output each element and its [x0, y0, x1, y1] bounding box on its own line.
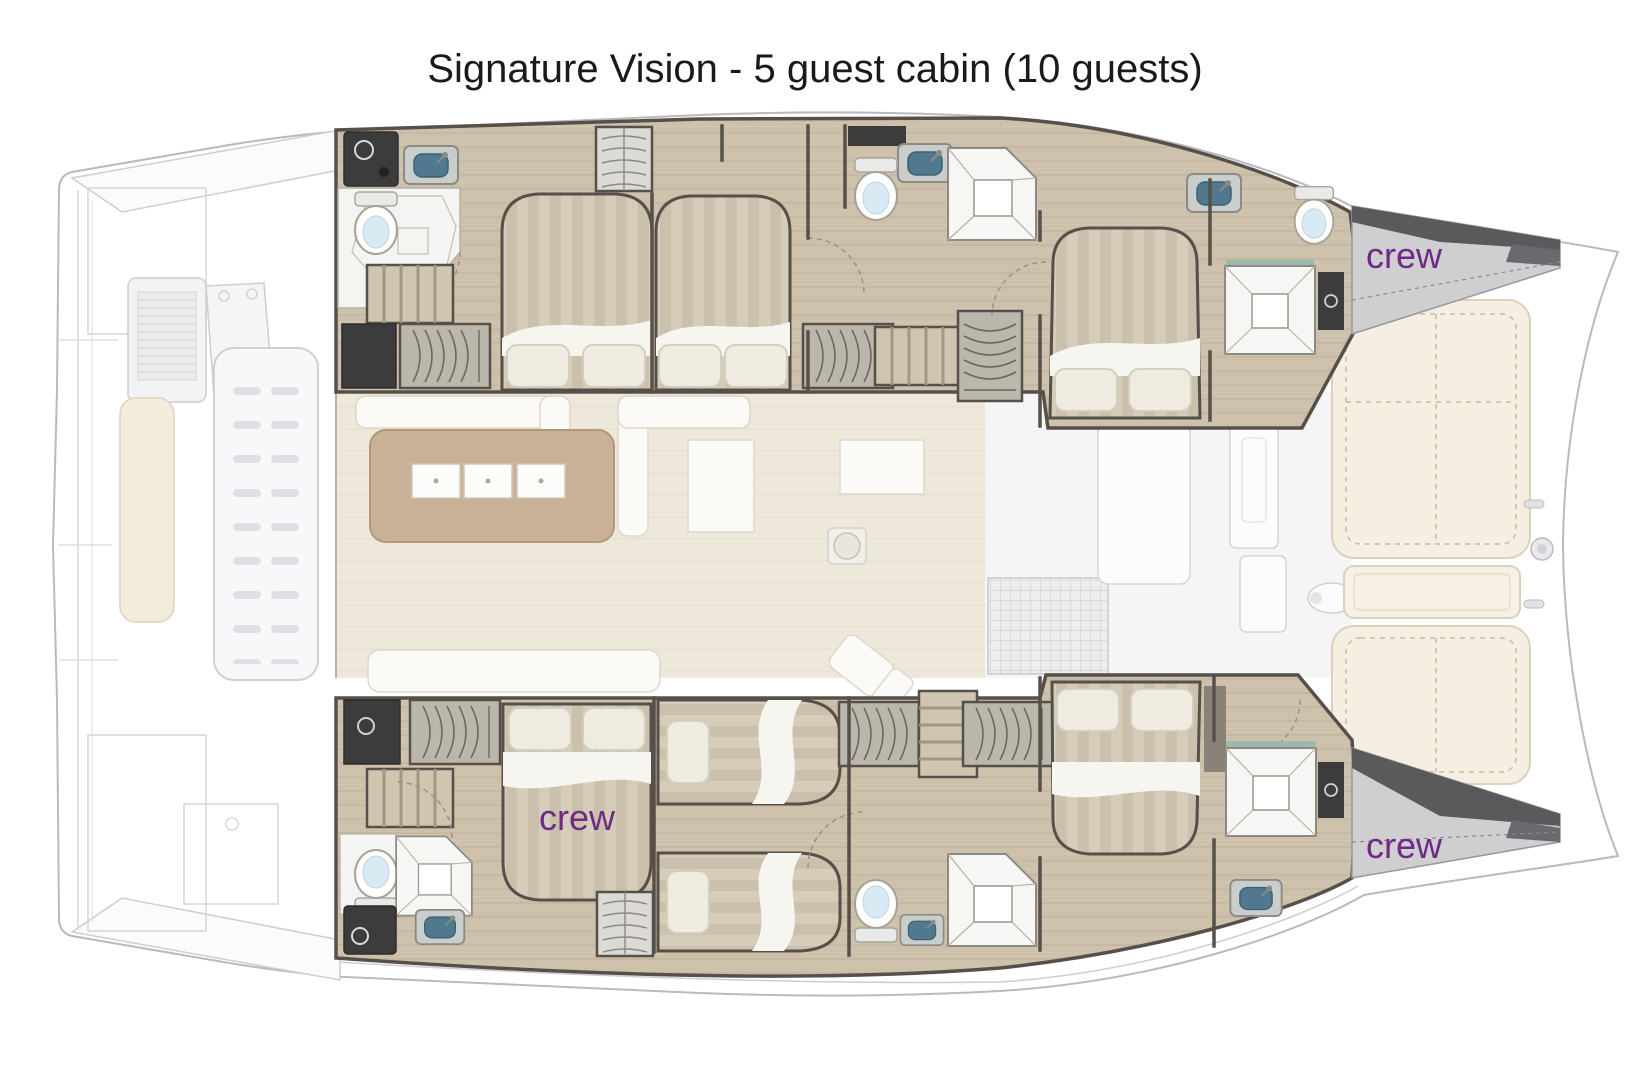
pillow: [583, 708, 645, 750]
page-title: Signature Vision - 5 guest cabin (10 gue…: [427, 47, 1202, 91]
hanging-locker: [958, 311, 1022, 401]
crew-label-port-aft-cabin: crew: [539, 797, 616, 838]
shower-teal-strip: [1226, 741, 1316, 748]
shelf-unit: [367, 265, 453, 323]
bow-cleat: [1524, 600, 1544, 608]
pillow: [659, 345, 721, 387]
hanging-locker: [400, 324, 490, 388]
toilet: [355, 850, 397, 912]
windlass-center: [1537, 544, 1547, 554]
sink: [1230, 880, 1281, 916]
sink: [898, 144, 952, 182]
companionway-stairs: [596, 127, 652, 191]
pillow: [509, 708, 571, 750]
shower-door: [1240, 556, 1286, 632]
hanging-locker: [410, 700, 500, 764]
hanging-locker: [839, 702, 929, 766]
sink: [404, 146, 458, 184]
starboard-aft-cabin-bed: [502, 194, 652, 390]
vanity-counter-dark: [848, 126, 906, 146]
single-bed-lower: [658, 853, 840, 951]
sink: [416, 910, 465, 944]
sink: [1187, 174, 1241, 212]
galley-sinks: [412, 464, 565, 498]
shower-column: [344, 132, 398, 186]
saloon-cabinet: [840, 440, 924, 494]
crew-label-starboard-bow: crew: [1366, 235, 1443, 276]
cockpit-bench-cushion: [120, 398, 174, 622]
cockpit-table-slats: [228, 364, 304, 664]
deck-hatch-ring: [834, 533, 860, 559]
shelf-unit: [875, 327, 961, 385]
forward-cabinet: [1230, 412, 1278, 548]
pillow: [667, 871, 709, 933]
shower-column: [344, 906, 396, 954]
vent-grille: [138, 292, 196, 380]
crew-label-port-bow: crew: [1366, 825, 1443, 866]
single-bed-upper: [658, 700, 840, 804]
companionway-stairs: [597, 892, 653, 956]
pillow: [1131, 689, 1193, 731]
pillow: [1055, 369, 1117, 411]
pillow: [507, 345, 569, 387]
shower: [1225, 266, 1315, 354]
sink: [900, 915, 943, 945]
mast-step-detail: [1310, 592, 1322, 604]
shelf-unit: [367, 769, 453, 827]
locker-dark: [1318, 272, 1344, 330]
grid-mat: [988, 578, 1108, 674]
toilet: [355, 192, 397, 254]
pillow: [583, 345, 645, 387]
pillow: [725, 345, 787, 387]
pillow: [1129, 369, 1191, 411]
toilet: [1295, 187, 1334, 244]
locker-dark: [1318, 762, 1344, 818]
saloon-sofa-back: [356, 396, 568, 428]
saloon-cabinet: [688, 440, 754, 532]
forward-sofa: [1098, 422, 1190, 584]
shower: [1226, 748, 1316, 836]
bow-sunpads: [1332, 300, 1553, 784]
sunpad-upper: [1332, 300, 1530, 558]
saloon-sofa-back: [618, 396, 750, 428]
pillow: [1057, 689, 1119, 731]
pillow: [667, 721, 709, 783]
starboard-mid-cabin-bed: [656, 196, 790, 390]
shower-knob: [379, 167, 389, 177]
wardrobe-dark: [342, 324, 396, 388]
saloon: [336, 392, 985, 714]
floorplan-canvas: crew crew: [0, 0, 1626, 1066]
toilet: [855, 880, 897, 942]
crew-bed: crew: [503, 704, 651, 900]
saloon-settee: [368, 650, 660, 692]
toilet: [855, 158, 897, 220]
bow-cleat: [1524, 500, 1544, 508]
